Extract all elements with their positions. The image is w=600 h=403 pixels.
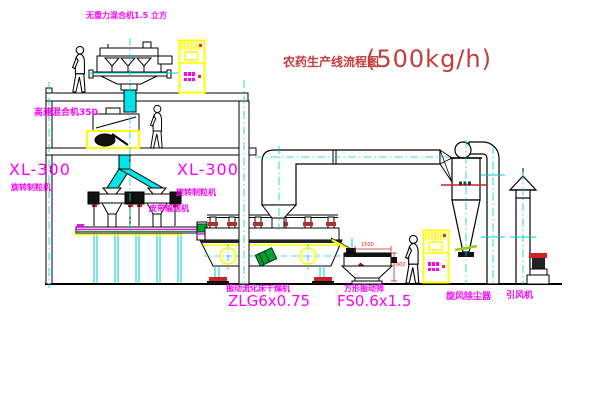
label-high-speed-mixer: 高速混合机350 <box>34 109 98 118</box>
label-induced-draft-fan: 引风机 <box>506 292 533 301</box>
fluid-bed-dryer <box>200 215 342 284</box>
gravity-mixer <box>89 42 172 90</box>
mixer-valve-icons <box>105 58 151 72</box>
dimension-screen-height: 600 <box>396 263 406 268</box>
worker-figure-3 <box>406 235 419 283</box>
exhaust-duct <box>262 150 440 228</box>
label-belt-conveyor: 皮带输送机 <box>149 205 189 213</box>
worker-figure-1 <box>73 46 85 92</box>
label-granulator-right: 旋转制粒机 <box>176 189 216 197</box>
belt-conveyor <box>74 224 198 283</box>
label-granulator-model-right: XL-300 <box>177 162 239 178</box>
rotary-granulator-left <box>88 188 136 227</box>
control-cabinet-right <box>424 231 449 283</box>
control-cabinet-top <box>180 41 205 93</box>
y-chute <box>107 155 163 188</box>
worker-figure-2 <box>150 105 162 148</box>
label-cyclone: 旋风除尘器 <box>446 293 491 302</box>
flow-diagram-canvas: 无重力混合机1.5 立方 农药生产线流程图 (500kg/h) 高速混合机350… <box>0 0 600 403</box>
page-title: 农药生产线流程图 <box>283 56 379 68</box>
label-granulator-model-left: XL-300 <box>9 162 71 178</box>
cyclone-nameplate <box>459 182 471 186</box>
label-gravity-mixer: 无重力混合机1.5 立方 <box>86 12 167 20</box>
label-dryer-model: ZLG6x0.75 <box>228 294 310 309</box>
page-title-capacity: (500kg/h) <box>366 47 492 71</box>
label-granulator-left: 旋转制粒机 <box>11 184 51 192</box>
dimension-screen-length: 1500 <box>361 243 374 248</box>
label-screen-model: FS0.6x1.5 <box>337 294 411 309</box>
induced-draft-fan <box>527 253 549 284</box>
dryer-supports <box>207 266 334 284</box>
